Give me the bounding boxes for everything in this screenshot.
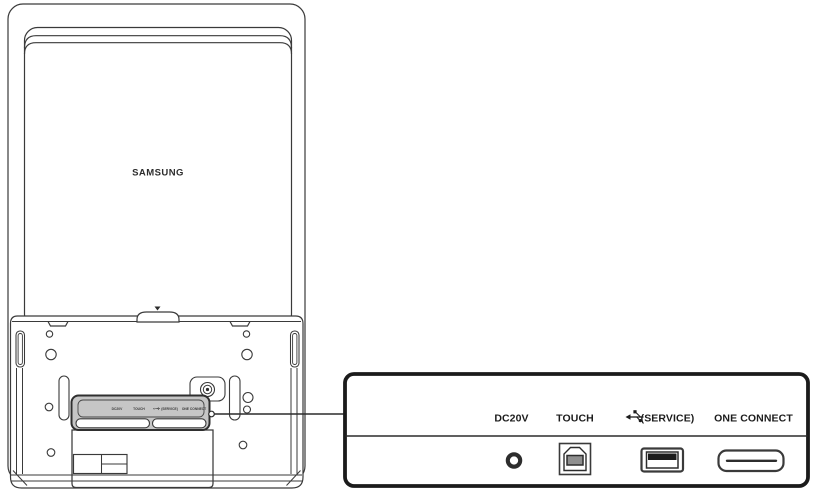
- port-label-one-connect: ONE CONNECT: [714, 413, 793, 425]
- power-pin: [206, 388, 209, 391]
- port-label-touch: TOUCH: [556, 413, 594, 425]
- recess-port-label-touch: TOUCH: [133, 407, 145, 411]
- kickstand-latch: [74, 455, 128, 474]
- ports-detail-panel: DC20V TOUCH (SERVICE) ONE CONNECT: [345, 374, 808, 486]
- recess-port-label-dc20v: DC20V: [112, 407, 123, 411]
- samsung-logo: SAMSUNG: [132, 168, 184, 179]
- callout-anchor-dot: [209, 411, 215, 417]
- stand-handle-notch: [137, 312, 179, 322]
- diagram-canvas: SAMSUNG: [0, 0, 819, 497]
- dc-jack-icon: [508, 454, 520, 466]
- recess-port-label-one-connect: ONE CONNECT: [182, 407, 206, 411]
- usb-b-port-icon: [560, 444, 591, 475]
- screenshot-root: SAMSUNG: [0, 0, 819, 497]
- port-label-dc20v: DC20V: [494, 413, 528, 425]
- kickstand: [72, 430, 213, 488]
- screw-hole: [46, 331, 52, 337]
- monitor-rear-view: SAMSUNG: [8, 4, 345, 488]
- screw-hole: [46, 349, 56, 359]
- screw-hole: [242, 349, 252, 359]
- recess-slot-right: [153, 419, 207, 428]
- screw-hole: [47, 449, 55, 457]
- one-connect-port-icon: [719, 451, 784, 472]
- ports-recess: DC20V TOUCH (SERVICE) ONE CONNECT: [72, 396, 210, 431]
- vent-slot-left: [16, 331, 25, 367]
- stand-base: DC20V TOUCH (SERVICE) ONE CONNECT: [11, 307, 346, 489]
- screw-hole: [244, 406, 251, 413]
- recess-port-label-service: (SERVICE): [161, 407, 178, 411]
- screw-hole: [239, 441, 247, 449]
- monitor-back-panel: SAMSUNG: [25, 28, 292, 328]
- recess-slot-left: [76, 419, 150, 428]
- screw-hole: [243, 331, 249, 337]
- screw-hole: [243, 393, 253, 403]
- screw-hole: [45, 403, 53, 411]
- vent-slot-right: [291, 331, 300, 367]
- usb-a-port-icon: [642, 449, 684, 472]
- port-label-usb-service: (SERVICE): [641, 413, 695, 425]
- cable-slot-left: [59, 376, 69, 420]
